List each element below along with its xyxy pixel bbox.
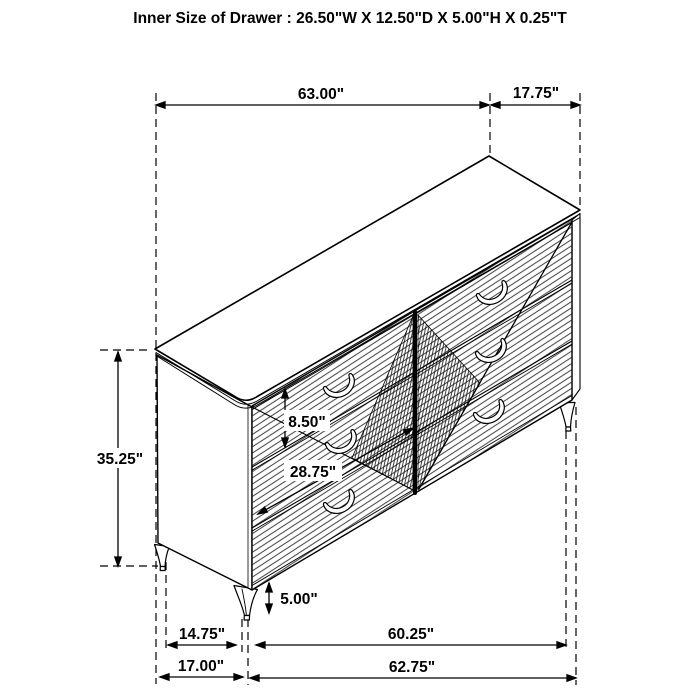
diagram-canvas: Inner Size of Drawer : 26.50"W X 12.50"D…: [0, 0, 700, 700]
diagram-title: Inner Size of Drawer : 26.50"W X 12.50"D…: [133, 10, 567, 27]
dim-drawer-width-label: 28.75": [290, 464, 336, 481]
right-end-panel: [572, 214, 580, 401]
dim-front-width-label: 62.75": [389, 659, 435, 676]
dim-front-span-label: 60.25": [388, 626, 434, 643]
dresser-drawing: [155, 156, 581, 620]
dim-height-label: 35.25": [97, 451, 143, 468]
dim-top-depth-label: 17.75": [513, 85, 559, 102]
dim-top-width-label: 63.00": [298, 86, 344, 103]
dresser-dimension-diagram: Inner Size of Drawer : 26.50"W X 12.50"D…: [0, 0, 700, 700]
dim-drawer-height-label: 8.50": [288, 414, 326, 431]
dim-side-depth-label: 17.00": [178, 658, 224, 675]
dim-leg-height-label: 5.00": [280, 591, 318, 608]
dim-side-span-label: 14.75": [179, 626, 225, 643]
